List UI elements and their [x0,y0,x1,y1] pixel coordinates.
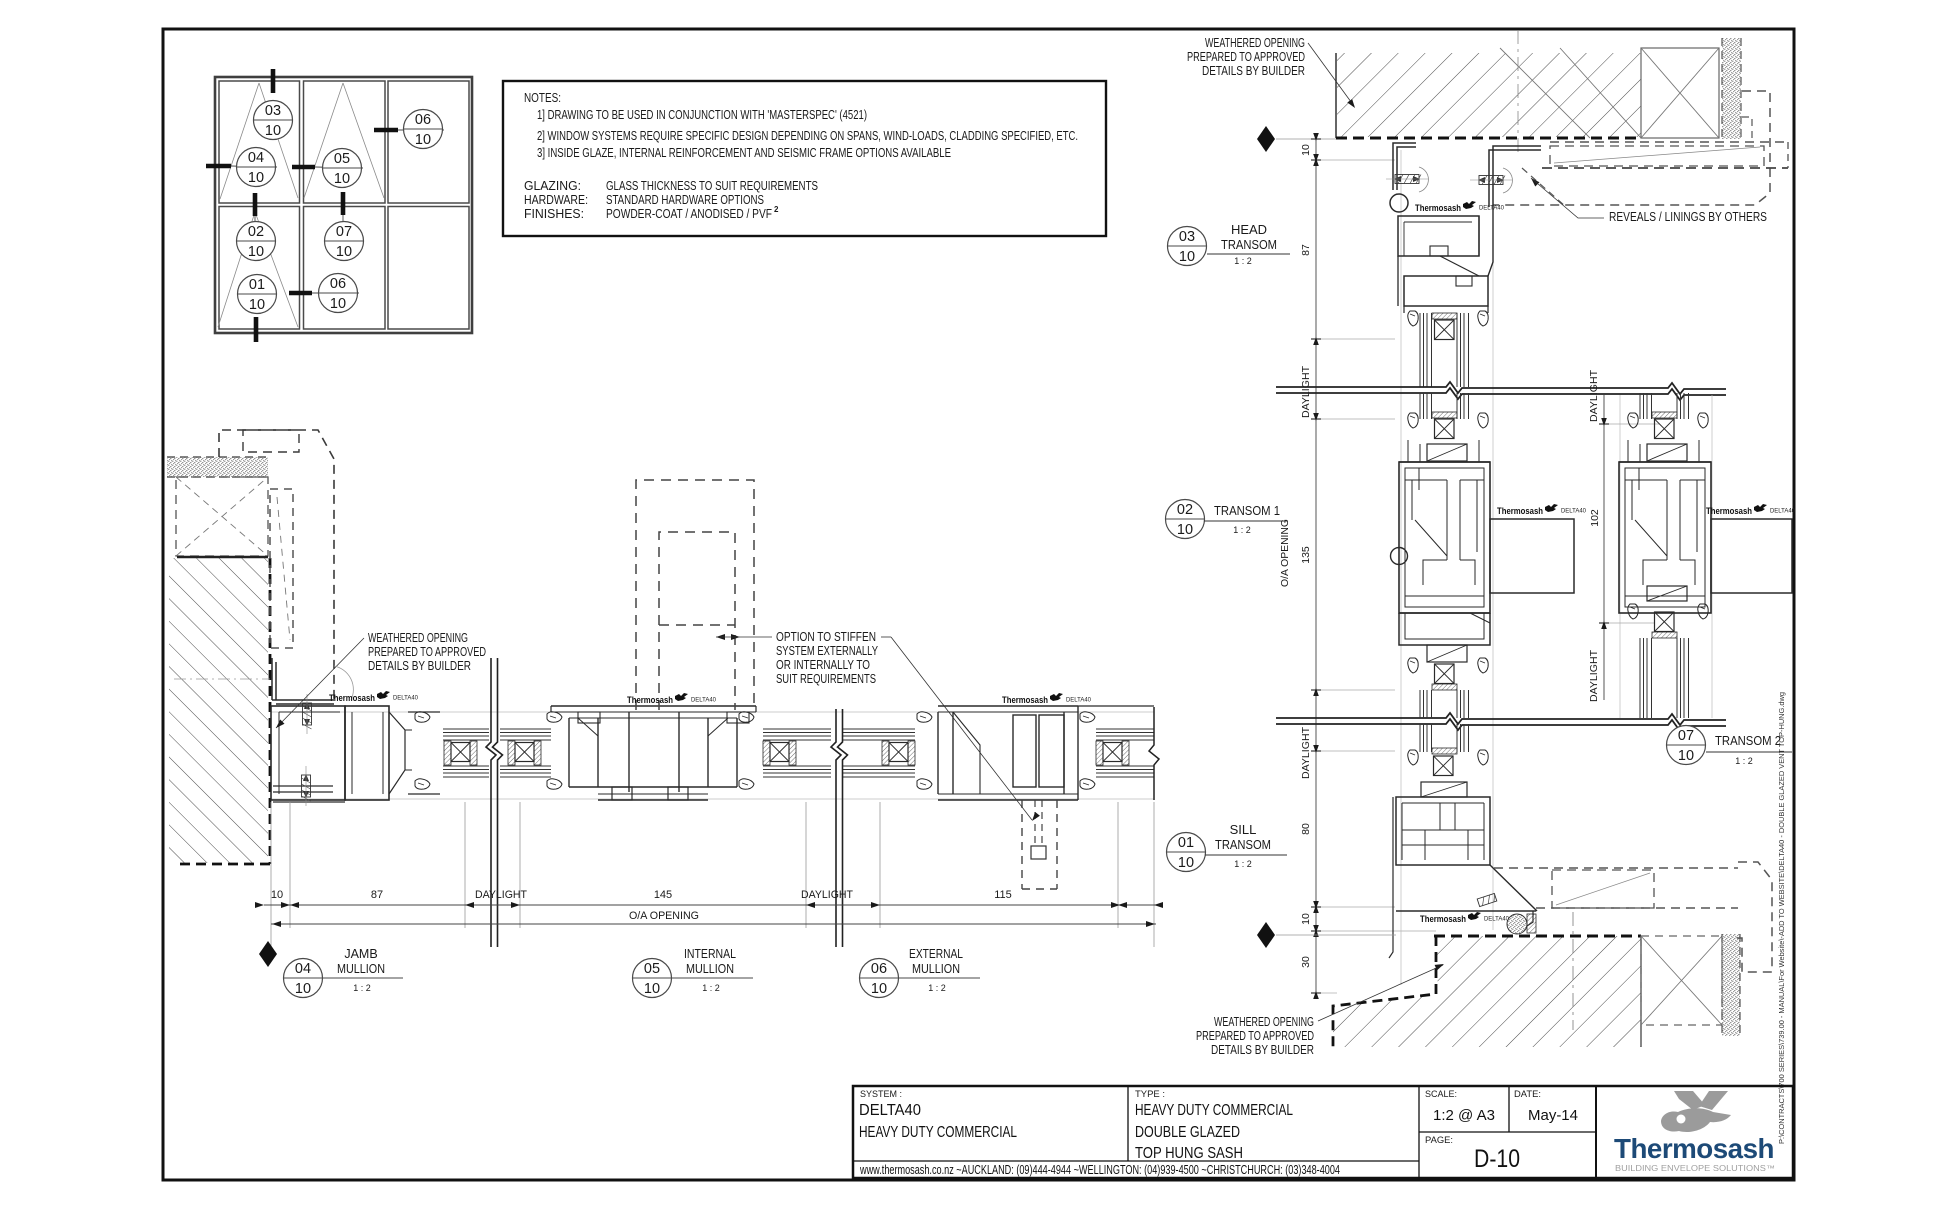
svg-text:135: 135 [1300,546,1312,564]
svg-text:DAYLIGHT: DAYLIGHT [1300,365,1312,418]
svg-text:GLASS THICKNESS TO SUIT REQUIR: GLASS THICKNESS TO SUIT REQUIREMENTS [606,178,818,193]
svg-text:May-14: May-14 [1528,1107,1578,1124]
svg-text:10: 10 [1179,249,1195,265]
svg-text:07: 07 [336,224,352,240]
svg-text:TYPE :: TYPE : [1135,1089,1165,1100]
svg-text:DAYLIGHT: DAYLIGHT [1588,369,1600,422]
svg-text:PREPARED TO APPROVED: PREPARED TO APPROVED [1196,1029,1314,1043]
svg-text:Thermosash: Thermosash [1614,1133,1774,1164]
svg-text:FINISHES:: FINISHES: [524,206,584,221]
svg-text:Thermosash: Thermosash [1497,506,1543,517]
svg-text:OR INTERNALLY TO: OR INTERNALLY TO [776,658,870,672]
svg-text:01: 01 [1178,835,1194,851]
svg-text:80: 80 [1300,823,1312,835]
svg-text:06: 06 [415,112,431,128]
svg-text:10: 10 [248,244,264,260]
svg-text:1 : 2: 1 : 2 [1233,525,1251,535]
svg-text:HEAVY DUTY COMMERCIAL: HEAVY DUTY COMMERCIAL [859,1124,1017,1141]
svg-text:10: 10 [1678,748,1694,764]
svg-text:DAYLIGHT: DAYLIGHT [1300,726,1312,779]
svg-text:115: 115 [994,889,1012,901]
svg-text:04: 04 [295,961,311,977]
svg-text:PREPARED TO APPROVED: PREPARED TO APPROVED [1187,50,1305,64]
svg-text:HEAVY DUTY COMMERCIAL: HEAVY DUTY COMMERCIAL [1135,1102,1293,1119]
svg-text:TOP HUNG SASH: TOP HUNG SASH [1135,1145,1243,1162]
svg-text:O/A OPENING: O/A OPENING [629,910,699,922]
svg-text:WEATHERED OPENING: WEATHERED OPENING [1214,1015,1314,1029]
svg-text:02: 02 [1177,502,1193,518]
svg-text:10: 10 [1300,913,1312,925]
svg-text:06: 06 [871,961,887,977]
svg-text:TRANSOM 1: TRANSOM 1 [1214,503,1280,518]
svg-text:10: 10 [644,981,660,997]
svg-text:10: 10 [871,981,887,997]
svg-text:10: 10 [295,981,311,997]
svg-text:10: 10 [248,170,264,186]
svg-text:JAMB: JAMB [344,947,377,961]
svg-text:HEAD: HEAD [1231,222,1267,237]
svg-text:1 : 2: 1 : 2 [353,983,371,993]
svg-text:03: 03 [265,103,281,119]
svg-text:Thermosash: Thermosash [627,695,673,706]
svg-text:GLAZING:: GLAZING: [524,178,581,193]
svg-text:MULLION: MULLION [337,962,385,976]
svg-text:TRANSOM: TRANSOM [1221,237,1277,252]
svg-text:SUIT REQUIREMENTS: SUIT REQUIREMENTS [776,672,876,686]
svg-text:DELTA40: DELTA40 [1479,205,1504,212]
svg-text:10: 10 [1178,855,1194,871]
svg-text:MULLION: MULLION [912,962,960,976]
svg-text:DATE:: DATE: [1514,1089,1541,1100]
svg-text:145: 145 [654,889,672,901]
svg-text:STANDARD HARDWARE OPTIONS: STANDARD HARDWARE OPTIONS [606,192,764,207]
svg-text:SYSTEM EXTERNALLY: SYSTEM EXTERNALLY [776,644,878,658]
svg-text:DELTA40: DELTA40 [1066,697,1091,704]
svg-text:DOUBLE GLAZED: DOUBLE GLAZED [1135,1124,1240,1141]
svg-text:10: 10 [249,297,265,313]
svg-text:1 : 2: 1 : 2 [928,983,946,993]
svg-text:DELTA40: DELTA40 [393,695,418,702]
svg-text:06: 06 [330,276,346,292]
svg-text:10: 10 [1177,522,1193,538]
svg-text:03: 03 [1179,229,1195,245]
svg-text:Thermosash: Thermosash [1706,506,1752,517]
svg-text:DELTA40: DELTA40 [691,697,716,704]
svg-text:D-10: D-10 [1474,1145,1520,1173]
svg-text:Thermosash: Thermosash [1420,914,1466,925]
svg-text:INTERNAL: INTERNAL [684,947,736,961]
svg-text:DAYLIGHT: DAYLIGHT [1588,649,1600,702]
svg-text:Thermosash: Thermosash [1002,695,1048,706]
svg-text:WEATHERED OPENING: WEATHERED OPENING [368,631,468,645]
svg-text:1 : 2: 1 : 2 [1234,859,1252,869]
svg-text:SCALE:: SCALE: [1425,1089,1457,1100]
svg-text:87: 87 [371,889,383,901]
svg-text:10: 10 [265,123,281,139]
svg-text:3] INSIDE GLAZE, INTERNAL REIN: 3] INSIDE GLAZE, INTERNAL REINFORCEMENT … [537,145,951,160]
svg-text:DETAILS BY BUILDER: DETAILS BY BUILDER [1202,64,1305,78]
svg-text:DELTA40: DELTA40 [1770,508,1795,515]
svg-text:Thermosash: Thermosash [1415,203,1461,214]
svg-text:01: 01 [249,277,265,293]
svg-text:2: 2 [774,205,779,214]
svg-text:POWDER-COAT / ANODISED / PVF: POWDER-COAT / ANODISED / PVF [606,206,772,221]
svg-text:DAYLIGHT: DAYLIGHT [801,889,853,901]
svg-text:BUILDING ENVELOPE SOLUTIONS™: BUILDING ENVELOPE SOLUTIONS™ [1615,1164,1775,1173]
svg-text:1] DRAWING TO BE USED IN CONJU: 1] DRAWING TO BE USED IN CONJUNCTION WIT… [537,107,867,122]
svg-text:10: 10 [336,244,352,260]
svg-text:04: 04 [248,150,264,166]
svg-text:REVEALS / LININGS BY OTHERS: REVEALS / LININGS BY OTHERS [1609,210,1767,224]
svg-text:30: 30 [1300,956,1312,968]
svg-text:87: 87 [1300,244,1312,256]
svg-text:DELTA40: DELTA40 [1561,508,1586,515]
svg-text:DETAILS BY BUILDER: DETAILS BY BUILDER [368,659,471,673]
svg-text:PREPARED TO APPROVED: PREPARED TO APPROVED [368,645,486,659]
svg-text:MULLION: MULLION [686,962,734,976]
svg-text:www.thermosash.co.nz ~AUCKLAND: www.thermosash.co.nz ~AUCKLAND: (09)444-… [859,1162,1340,1177]
svg-text:P:\CONTRACTS\700 SERIES\739.00: P:\CONTRACTS\700 SERIES\739.00 - MANUAL\… [1777,692,1786,1144]
svg-text:SYSTEM :: SYSTEM : [860,1089,902,1100]
svg-text:DELTA40: DELTA40 [859,1102,921,1119]
svg-text:WEATHERED OPENING: WEATHERED OPENING [1205,36,1305,50]
svg-text:DETAILS BY BUILDER: DETAILS BY BUILDER [1211,1043,1314,1057]
svg-text:10: 10 [271,889,283,901]
svg-text:PAGE:: PAGE: [1425,1135,1453,1146]
svg-text:HARDWARE:: HARDWARE: [524,192,588,207]
svg-text:05: 05 [334,151,350,167]
svg-text:TRANSOM 2: TRANSOM 2 [1715,733,1781,748]
svg-text:1 : 2: 1 : 2 [1735,756,1753,766]
svg-text:05: 05 [644,961,660,977]
svg-text:10: 10 [1300,144,1312,156]
svg-text:1 : 2: 1 : 2 [702,983,720,993]
svg-text:NOTES:: NOTES: [524,90,561,105]
svg-text:10: 10 [330,296,346,312]
svg-text:07: 07 [1678,728,1694,744]
svg-text:O/A OPENING: O/A OPENING [1279,519,1291,587]
svg-text:1 : 2: 1 : 2 [1234,256,1252,266]
svg-text:2] WINDOW SYSTEMS REQUIRE SPEC: 2] WINDOW SYSTEMS REQUIRE SPECIFIC DESIG… [537,128,1078,143]
svg-text:1:2 @ A3: 1:2 @ A3 [1433,1107,1495,1124]
svg-text:EXTERNAL: EXTERNAL [909,947,963,961]
svg-text:DELTA40: DELTA40 [1484,916,1509,923]
svg-text:TRANSOM: TRANSOM [1215,837,1271,852]
svg-text:10: 10 [334,171,350,187]
svg-text:102: 102 [1589,509,1601,527]
svg-text:Thermosash: Thermosash [329,693,375,704]
svg-text:02: 02 [248,224,264,240]
svg-text:10: 10 [415,132,431,148]
svg-text:OPTION TO STIFFEN: OPTION TO STIFFEN [776,630,876,644]
svg-text:DAYLIGHT: DAYLIGHT [475,889,527,901]
svg-text:SILL: SILL [1230,822,1257,837]
